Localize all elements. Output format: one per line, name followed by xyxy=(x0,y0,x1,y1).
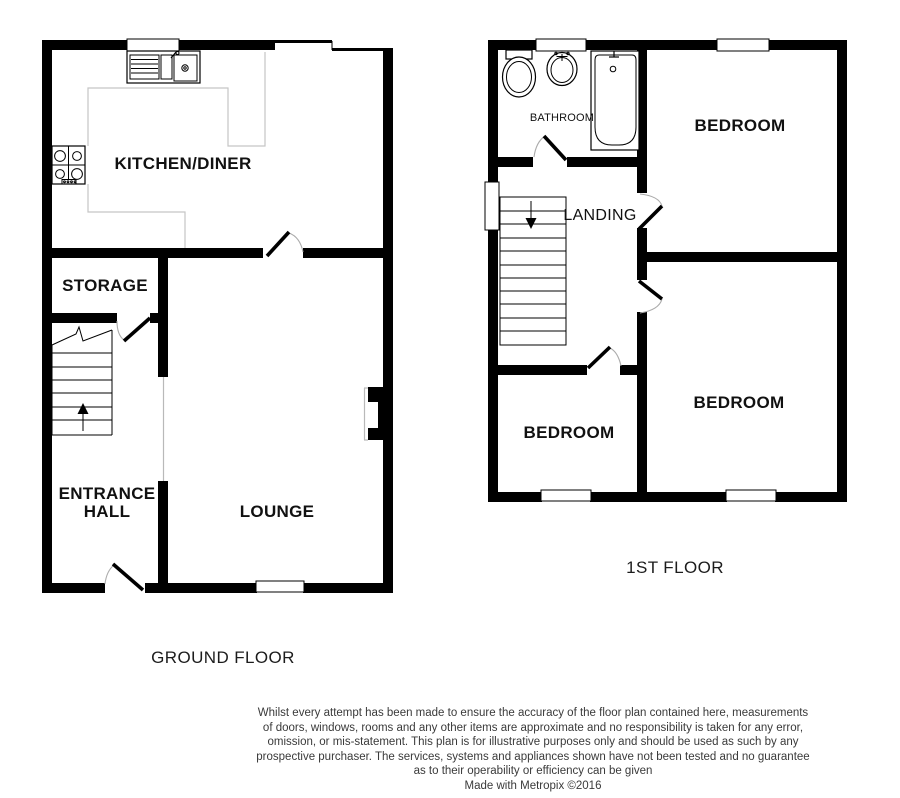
ff-bedroom-right-door xyxy=(639,281,662,313)
ff-staircase xyxy=(500,197,566,345)
ff-bedroom-front-window xyxy=(717,39,769,51)
gf-kitchen-window xyxy=(127,39,179,51)
disclaimer-text: Whilst every attempt has been made to en… xyxy=(183,706,883,794)
ff-bath-fixture xyxy=(591,51,639,150)
gf-kitchen-door xyxy=(267,232,303,256)
ff-landing-window xyxy=(485,182,499,230)
room-label-entrance-hall-line2: HALL xyxy=(84,502,131,521)
ff-basin-fixture xyxy=(547,52,577,85)
disclaimer-line: as to their operability or efficiency ca… xyxy=(183,764,883,779)
ff-bathroom-window xyxy=(536,39,586,51)
ff-bedroom-left-door xyxy=(588,347,621,368)
ground-floor-plan: KITCHEN/DINER STORAGE ENTRANCE HALL LOUN… xyxy=(42,39,393,667)
room-label-bedroom-front: BEDROOM xyxy=(695,116,786,135)
gf-hob-fixture xyxy=(52,146,85,184)
ff-toilet-fixture xyxy=(503,50,536,97)
room-label-kitchen-diner: KITCHEN/DINER xyxy=(114,154,251,173)
room-label-entrance-hall-line1: ENTRANCE xyxy=(59,484,156,503)
disclaimer-line: prospective purchaser. The services, sys… xyxy=(183,750,883,765)
stairs-down-arrow-icon xyxy=(526,201,537,229)
ground-floor-title: GROUND FLOOR xyxy=(151,648,295,667)
disclaimer-line: Whilst every attempt has been made to en… xyxy=(183,706,883,721)
room-label-landing: LANDING xyxy=(563,207,636,224)
gf-lounge-window xyxy=(256,581,304,592)
floorplan-page: KITCHEN/DINER STORAGE ENTRANCE HALL LOUN… xyxy=(0,0,900,798)
room-label-bedroom-back-left: BEDROOM xyxy=(524,423,615,442)
ff-bedroom-right-window xyxy=(726,490,776,501)
metropix-credit: Made with Metropix ©2016 xyxy=(183,779,883,794)
room-label-storage: STORAGE xyxy=(62,276,148,295)
gf-staircase xyxy=(52,327,112,435)
gf-fireplace xyxy=(364,387,383,440)
first-floor-plan: BATHROOM BEDROOM LANDING BEDROOM BEDROOM… xyxy=(485,39,847,577)
first-floor-title: 1ST FLOOR xyxy=(626,558,724,577)
disclaimer-line: of doors, windows, rooms and any other i… xyxy=(183,721,883,736)
room-label-bathroom: BATHROOM xyxy=(530,112,594,124)
floorplan-drawing: KITCHEN/DINER STORAGE ENTRANCE HALL LOUN… xyxy=(0,0,900,798)
ff-bathroom-door xyxy=(534,136,566,160)
gf-front-door xyxy=(105,564,143,590)
gf-storage-door xyxy=(117,318,150,341)
disclaimer-line: omission, or mis-statement. This plan is… xyxy=(183,735,883,750)
ff-bedroom-left-window xyxy=(541,490,591,501)
gf-sink-fixture xyxy=(127,51,200,83)
room-label-lounge: LOUNGE xyxy=(240,502,315,521)
room-label-bedroom-back-right: BEDROOM xyxy=(694,393,785,412)
ff-bedroom-front-door xyxy=(639,194,662,229)
